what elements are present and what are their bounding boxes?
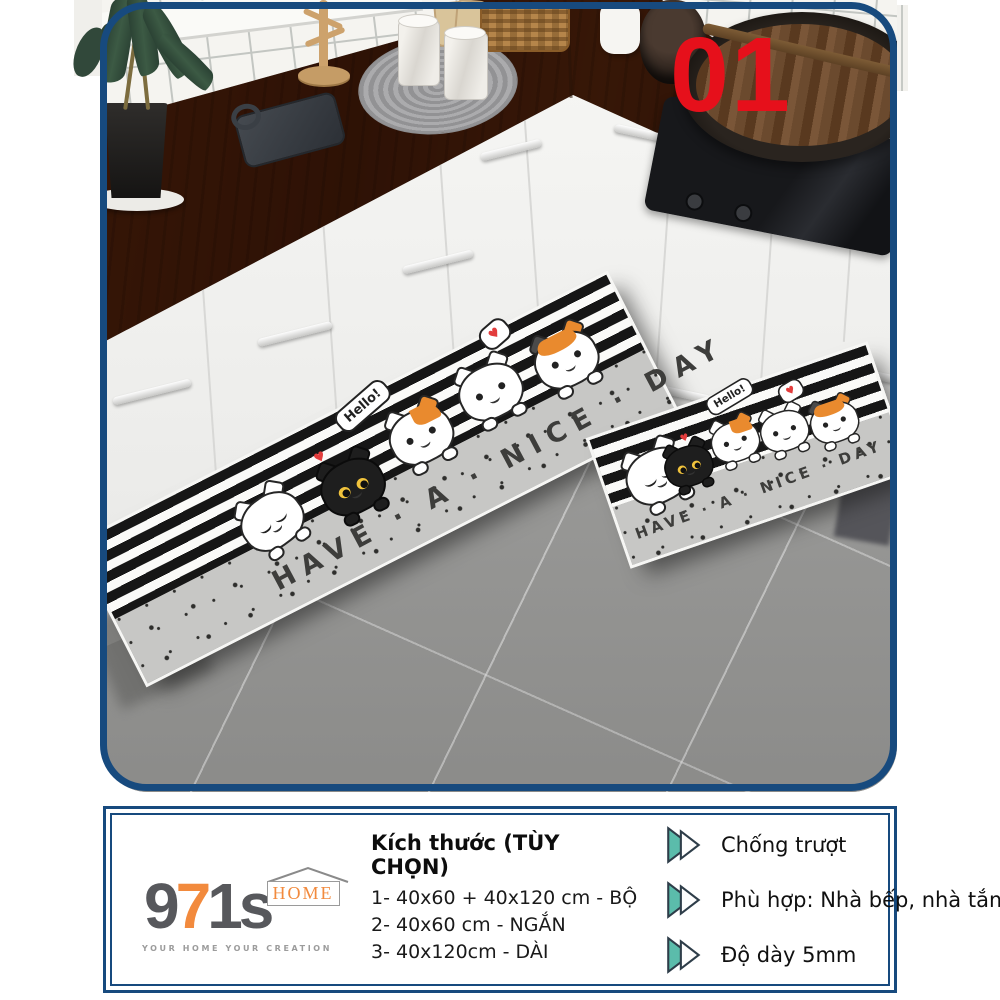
feature-text: Phù hợp: Nhà bếp, nhà tắm [721, 888, 1000, 912]
canister [398, 20, 440, 86]
photo-corner-bleed-right [897, 5, 908, 91]
canister [444, 32, 488, 100]
feature-row: Chống trượt [663, 824, 1000, 866]
feature-text: Chống trượt [721, 833, 846, 857]
feature-list: Chống trượt Phù hợp: Nhà bếp, nhà tắm Độ… [663, 811, 1000, 989]
size-options: Kích thước (TÙY CHỌN) 1- 40x60 + 40x120 … [371, 831, 639, 968]
feature-row: Độ dày 5mm [663, 934, 1000, 976]
wicker-basket [480, 2, 570, 52]
double-chevron-icon [663, 824, 705, 866]
double-chevron-icon [663, 934, 705, 976]
feature-row: Phù hợp: Nhà bếp, nhà tắm [663, 879, 1000, 921]
product-card: HAVE · A · NICE · DAY Hello! ♥ ♥ [0, 0, 1000, 1000]
double-chevron-icon [663, 879, 705, 921]
feature-text: Độ dày 5mm [721, 943, 856, 967]
info-panel: 971s HOME YOUR HOME YOUR CREATION Kích t… [103, 806, 897, 993]
variant-number-badge: 01 [670, 22, 792, 128]
size-option: 3- 40x120cm - DÀI [371, 941, 639, 963]
mug-tree-base [298, 66, 350, 85]
kitchen-photo: HAVE · A · NICE · DAY Hello! ♥ ♥ [102, 0, 897, 792]
plant-pot [102, 103, 170, 198]
info-panel-inner: 971s HOME YOUR HOME YOUR CREATION Kích t… [110, 813, 890, 986]
brand-name: 971s [144, 874, 270, 938]
brand-logo: 971s HOME YOUR HOME YOUR CREATION [138, 840, 353, 960]
brand-home-badge: HOME [266, 866, 340, 906]
photo-corner-bleed-left [74, 0, 104, 76]
brand-tagline: YOUR HOME YOUR CREATION [142, 944, 332, 953]
size-option: 2- 40x60 cm - NGẮN [371, 914, 639, 936]
size-option: 1- 40x60 + 40x120 cm - BỘ [371, 887, 639, 909]
white-jug [600, 4, 640, 54]
size-options-title: Kích thước (TÙY CHỌN) [371, 831, 639, 879]
